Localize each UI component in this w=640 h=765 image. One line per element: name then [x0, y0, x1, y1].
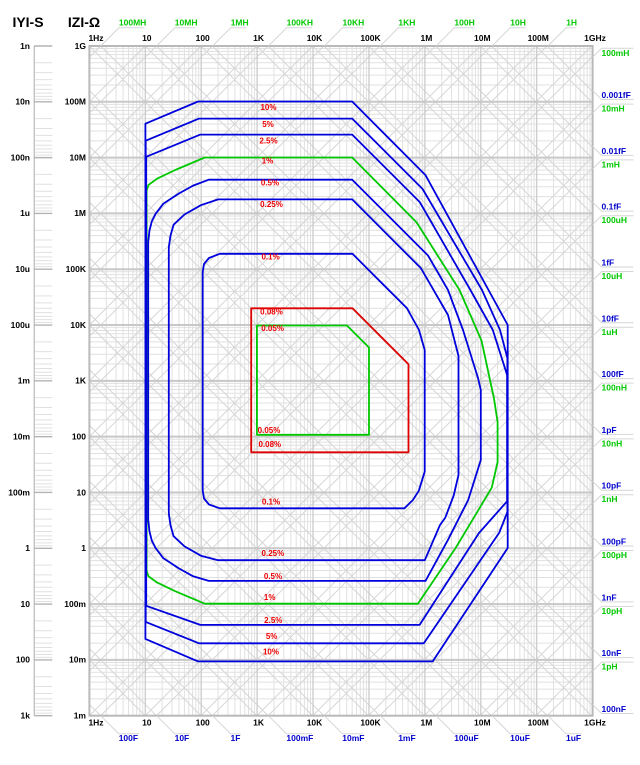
svg-text:100M: 100M [65, 97, 86, 107]
svg-text:100uH: 100uH [602, 215, 628, 225]
svg-text:100n: 100n [11, 152, 30, 162]
svg-text:1KH: 1KH [398, 18, 415, 28]
svg-text:1K: 1K [75, 376, 87, 386]
svg-text:1H: 1H [566, 18, 577, 28]
svg-text:10: 10 [21, 599, 31, 609]
svg-text:IZI-Ω: IZI-Ω [68, 14, 100, 30]
svg-text:10M: 10M [474, 33, 491, 43]
svg-text:0.25%: 0.25% [260, 200, 283, 209]
svg-text:100K: 100K [66, 264, 87, 274]
svg-text:10: 10 [142, 33, 152, 43]
svg-text:1K: 1K [253, 718, 265, 728]
svg-text:1fF: 1fF [602, 258, 615, 268]
svg-text:100mF: 100mF [286, 733, 313, 743]
svg-text:10mF: 10mF [342, 733, 364, 743]
svg-text:10nF: 10nF [602, 648, 622, 658]
svg-text:10F: 10F [175, 733, 190, 743]
svg-text:10m: 10m [69, 655, 86, 665]
svg-text:1M: 1M [74, 208, 86, 218]
svg-text:10: 10 [142, 718, 152, 728]
svg-text:100: 100 [196, 718, 210, 728]
svg-text:1Hz: 1Hz [88, 718, 103, 728]
svg-text:1m: 1m [18, 376, 31, 386]
svg-text:100nH: 100nH [602, 383, 628, 393]
svg-text:10n: 10n [15, 97, 30, 107]
svg-text:1u: 1u [20, 208, 30, 218]
svg-text:10M: 10M [69, 152, 86, 162]
svg-text:0.5%: 0.5% [264, 572, 282, 581]
svg-text:1%: 1% [262, 156, 274, 165]
svg-text:10MH: 10MH [175, 18, 198, 28]
svg-text:10mH: 10mH [602, 104, 625, 114]
svg-text:10pF: 10pF [602, 481, 622, 491]
svg-text:1K: 1K [253, 33, 265, 43]
svg-text:1pF: 1pF [602, 425, 617, 435]
svg-text:0.08%: 0.08% [260, 307, 283, 316]
svg-text:1uH: 1uH [602, 327, 618, 337]
svg-text:10m: 10m [13, 432, 30, 442]
svg-text:0.001fF: 0.001fF [602, 90, 631, 100]
svg-text:100: 100 [72, 432, 86, 442]
svg-text:1MH: 1MH [231, 18, 249, 28]
svg-text:1Hz: 1Hz [88, 33, 103, 43]
svg-text:100m: 100m [64, 599, 86, 609]
svg-text:100MH: 100MH [119, 18, 146, 28]
svg-text:100F: 100F [119, 733, 138, 743]
svg-text:2.5%: 2.5% [259, 137, 277, 146]
svg-text:100M: 100M [528, 718, 549, 728]
svg-text:100pF: 100pF [602, 537, 627, 547]
svg-text:100KH: 100KH [287, 18, 313, 28]
svg-text:10M: 10M [474, 718, 491, 728]
svg-text:10K: 10K [307, 33, 323, 43]
svg-text:10%: 10% [263, 648, 279, 657]
svg-text:100K: 100K [360, 718, 381, 728]
svg-text:0.08%: 0.08% [258, 440, 281, 449]
svg-text:1M: 1M [420, 718, 432, 728]
svg-text:100fF: 100fF [602, 369, 624, 379]
svg-text:1uF: 1uF [566, 733, 581, 743]
svg-text:100H: 100H [454, 18, 474, 28]
svg-text:10fF: 10fF [602, 313, 619, 323]
svg-text:1pH: 1pH [602, 662, 618, 672]
svg-text:1: 1 [25, 543, 30, 553]
svg-text:1k: 1k [21, 711, 31, 721]
svg-text:1n: 1n [20, 41, 30, 51]
svg-text:10K: 10K [307, 718, 323, 728]
svg-text:10%: 10% [260, 103, 276, 112]
svg-text:0.1%: 0.1% [261, 253, 279, 262]
svg-text:1nH: 1nH [602, 494, 618, 504]
svg-text:10uF: 10uF [510, 733, 530, 743]
svg-text:1M: 1M [420, 33, 432, 43]
svg-text:100K: 100K [360, 33, 381, 43]
svg-text:100: 100 [16, 655, 30, 665]
svg-text:5%: 5% [262, 120, 274, 129]
svg-text:0.5%: 0.5% [261, 178, 279, 187]
svg-text:100nF: 100nF [602, 704, 627, 714]
svg-text:0.1%: 0.1% [262, 497, 280, 506]
svg-text:10H: 10H [510, 18, 526, 28]
svg-text:0.1fF: 0.1fF [602, 202, 622, 212]
svg-text:1nF: 1nF [602, 592, 617, 602]
svg-text:10pH: 10pH [602, 606, 623, 616]
svg-text:100: 100 [196, 33, 210, 43]
svg-text:0.25%: 0.25% [262, 549, 285, 558]
svg-text:1GHz: 1GHz [584, 718, 606, 728]
svg-text:100pH: 100pH [602, 550, 628, 560]
svg-text:10uH: 10uH [602, 271, 623, 281]
svg-text:10KH: 10KH [343, 18, 365, 28]
svg-text:10K: 10K [70, 320, 86, 330]
svg-text:2.5%: 2.5% [264, 616, 282, 625]
svg-text:0.05%: 0.05% [261, 324, 284, 333]
svg-text:0.05%: 0.05% [258, 426, 281, 435]
svg-text:IYI-S: IYI-S [12, 14, 43, 30]
svg-text:10u: 10u [15, 264, 30, 274]
svg-text:0.01fF: 0.01fF [602, 146, 627, 156]
svg-text:1F: 1F [231, 733, 241, 743]
svg-text:10nH: 10nH [602, 438, 623, 448]
svg-text:1%: 1% [264, 593, 276, 602]
svg-text:1m: 1m [74, 711, 87, 721]
svg-text:1G: 1G [75, 41, 87, 51]
svg-text:1: 1 [81, 543, 86, 553]
svg-text:100uF: 100uF [454, 733, 479, 743]
svg-text:10: 10 [77, 487, 87, 497]
svg-text:1mH: 1mH [602, 159, 620, 169]
svg-text:100u: 100u [11, 320, 30, 330]
svg-text:1mF: 1mF [398, 733, 415, 743]
svg-text:100m: 100m [8, 487, 30, 497]
svg-text:5%: 5% [266, 632, 278, 641]
svg-text:1GHz: 1GHz [584, 33, 606, 43]
svg-text:100mH: 100mH [602, 48, 630, 58]
svg-text:100M: 100M [528, 33, 549, 43]
